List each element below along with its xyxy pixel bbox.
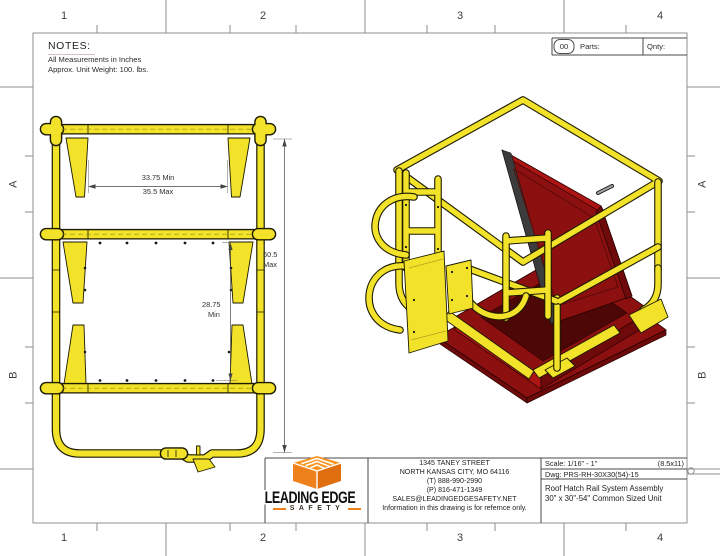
gate-hinge-plate xyxy=(446,260,473,314)
address-line-4: (P) 816-471-1349 xyxy=(368,487,541,495)
zone-top-4: 4 xyxy=(657,10,663,22)
iso-view-drawing xyxy=(369,100,668,403)
dwg-number-label: Dwg: PRS-RH-30X30(54)-15 xyxy=(545,471,639,479)
parts-label: Parts: xyxy=(580,43,600,52)
notes-line-1: All Measurements in Inches xyxy=(48,56,141,65)
logo-cube-icon xyxy=(293,456,341,489)
drawing-sheet: LEADING EDGE 1 2 3 4 1 2 3 4 A B A B NOT… xyxy=(0,0,720,556)
dim-height-value: 60.5 xyxy=(263,251,285,259)
zone-top-1: 1 xyxy=(61,10,67,22)
drawing-title-line-2: 30" x 30"-54" Common Sized Unit xyxy=(545,495,662,504)
address-line-2: NORTH KANSAS CITY, MO 64116 xyxy=(368,469,541,477)
zone-top-3: 3 xyxy=(457,10,463,22)
scale-label: Scale: 1/16" - 1" xyxy=(545,460,597,468)
parts-number-stamp: 00 xyxy=(554,43,574,52)
dim-inner-value: 28.75 xyxy=(202,301,228,309)
zone-left-a: A xyxy=(8,180,20,187)
notes-heading: NOTES: xyxy=(48,41,91,53)
dim-height-qualifier: Max xyxy=(263,261,285,269)
zone-top-2: 2 xyxy=(260,10,266,22)
sheet-size-label: (8.5x11) xyxy=(600,460,684,468)
zone-left-b: B xyxy=(8,371,20,378)
zone-right-b: B xyxy=(697,371,709,378)
notes-line-2: Approx. Unit Weight: 100. lbs. xyxy=(48,66,148,75)
zone-bottom-3: 3 xyxy=(457,532,463,544)
anchor-foot xyxy=(193,459,215,472)
address-line-5: SALES@LEADINGEDGESAFETY.NET xyxy=(368,496,541,504)
zone-right-a: A xyxy=(697,180,709,187)
dim-inner-qualifier: Min xyxy=(208,311,228,319)
qnty-label: Qnty: xyxy=(647,43,665,52)
dim-width-max: 35.5 Max xyxy=(120,188,196,196)
address-line-1: 1345 TANEY STREET xyxy=(368,460,541,468)
zone-bottom-2: 2 xyxy=(260,532,266,544)
address-line-3: (T) 888-990-2990 xyxy=(368,478,541,486)
logo-safety-text: SAFETY xyxy=(290,505,345,513)
zone-bottom-1: 1 xyxy=(61,532,67,544)
address-line-6: Information in this drawing is for refer… xyxy=(368,505,541,513)
drawing-title-line-1: Roof Hatch Rail System Assembly xyxy=(545,485,663,494)
dim-width-min: 33.75 Min xyxy=(120,174,196,182)
logo-safety-line: SAFETY xyxy=(273,505,361,513)
zone-bottom-4: 4 xyxy=(657,532,663,544)
